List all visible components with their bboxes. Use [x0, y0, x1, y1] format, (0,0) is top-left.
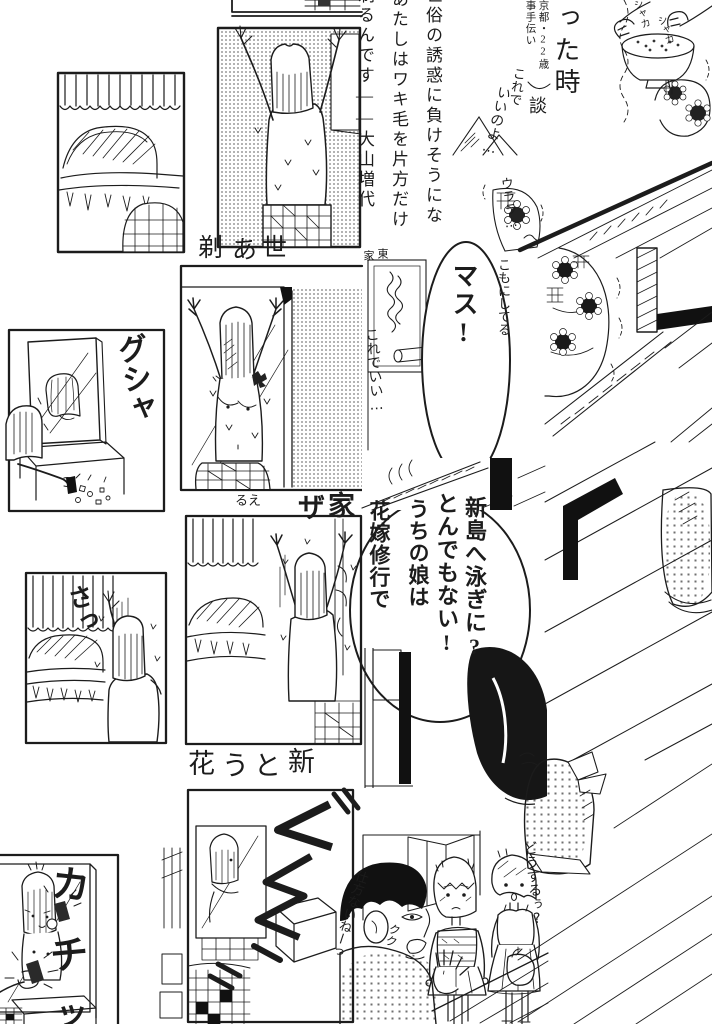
- panel-stretching-figure-sketch: [185, 0, 362, 265]
- fragment-ie-large: 家: [328, 484, 355, 523]
- attribution-suffix: 談: [528, 96, 546, 114]
- attribution-line-2: 事手伝い: [524, 0, 535, 46]
- panel-stretch-by-bed-sketch: [185, 515, 362, 745]
- fragment-r3c2: う: [222, 744, 249, 783]
- sfx-kachi-1: カ: [49, 852, 93, 911]
- speech-masu: マス!: [450, 262, 476, 349]
- polkadot-figure-floor-sketch: [518, 748, 712, 1024]
- sfx-kachi-2: チ: [48, 922, 91, 980]
- panel-shaver-buzz-sketch: [158, 788, 355, 1024]
- speech-line-4: 花嫁修行で: [368, 500, 389, 610]
- manga-page-collage: 世俗の誘惑に負けそうにな あたしはワキ毛を片方だけ 剃るんです――大山増代 家 …: [0, 0, 712, 1024]
- handwriting-komo: こもにしてる: [496, 258, 509, 336]
- panel-father-daughters-sketch: [340, 825, 548, 1024]
- speech-line-3: うちの娘は: [407, 498, 428, 608]
- attribution-line-1: 京都・22歳: [537, 0, 548, 70]
- sfx-kachi-3: ッ: [55, 987, 89, 1024]
- panel-bed-awning-sketch: [57, 72, 185, 253]
- essay-column-3: 剃るんです――大山増代: [356, 0, 373, 210]
- speech-line-1: 新島へ泳ぎに?: [463, 496, 485, 660]
- essay-continuation: った時: [552, 4, 578, 100]
- flower-bundle-doorway-sketch: [545, 248, 712, 442]
- essay-column-1: 世俗の誘惑に負けそうにな: [424, 0, 441, 226]
- fragment-r3c1: 花: [188, 742, 215, 781]
- fragment-r1c1: 剃: [198, 228, 223, 264]
- essay-fragment-higashi: 東: [376, 248, 387, 259]
- panel-jump-from-bed-sketch: [25, 572, 167, 744]
- panel-mirror-armpit-sketch: [180, 265, 362, 512]
- fragment-r1c3: 世: [262, 228, 287, 264]
- wood-floor-cushion-sketch: [545, 442, 712, 760]
- handwriting-rue: るえ: [235, 490, 261, 509]
- fragment-r1c2: あ: [232, 230, 257, 266]
- speech-line-2: とんでもない!: [435, 492, 457, 656]
- fragment-za: ザ: [298, 486, 325, 525]
- fragment-r3c4: 新: [288, 740, 315, 779]
- fragment-r3c3: と: [254, 744, 281, 783]
- essay-column-2: あたしはワキ毛を片方だけ: [390, 0, 407, 230]
- essay-fragment-ie: 家: [362, 250, 373, 261]
